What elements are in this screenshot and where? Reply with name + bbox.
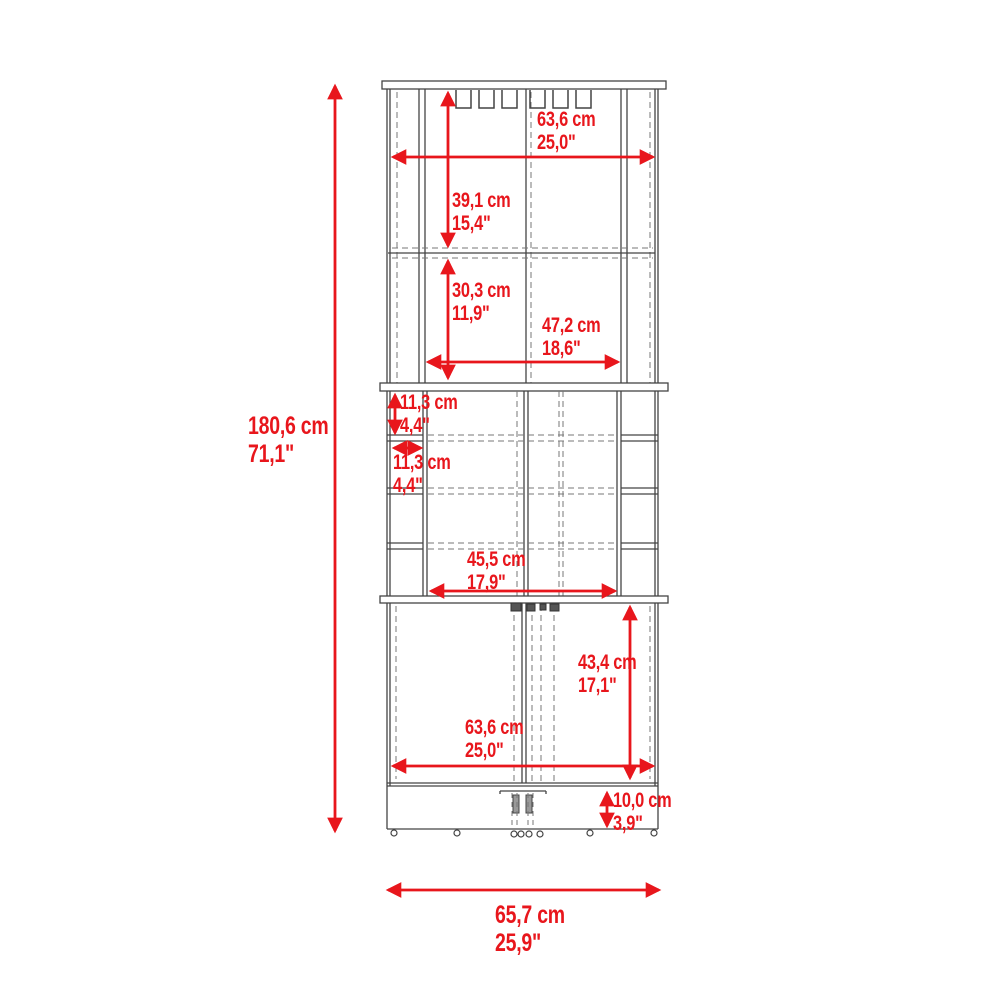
dim-label-overall-height: 180,6 cm 71,1" xyxy=(248,412,329,468)
dim-cm: 30,3 cm xyxy=(452,279,510,302)
dim-in: 18,6" xyxy=(542,337,600,360)
dim-label-hutch-top-height: 39,1 cm 15,4" xyxy=(452,189,510,235)
dim-label-top-width: 63,6 cm 25,0" xyxy=(537,108,595,154)
dim-cm: 39,1 cm xyxy=(452,189,510,212)
dim-label-cabinet-width: 63,6 cm 25,0" xyxy=(465,716,523,762)
top-board xyxy=(382,81,666,89)
dim-label-base-height: 10,0 cm 3,9" xyxy=(613,789,671,835)
dim-in: 25,0" xyxy=(537,131,595,154)
dim-label-middle-inner-width: 45,5 cm 17,9" xyxy=(467,548,525,594)
dim-in: 11,9" xyxy=(452,302,510,325)
stemware-rack-icon xyxy=(456,90,591,108)
dim-label-overall-width: 65,7 cm 25,9" xyxy=(495,901,565,957)
lower-board xyxy=(380,596,668,603)
dim-label-door-height: 43,4 cm 17,1" xyxy=(578,651,636,697)
dim-in: 71,1" xyxy=(248,440,329,468)
dim-cm: 10,0 cm xyxy=(613,789,671,812)
dim-cm: 43,4 cm xyxy=(578,651,636,674)
dim-cm: 11,3 cm xyxy=(400,391,458,414)
dim-label-hutch-inner-width: 47,2 cm 18,6" xyxy=(542,314,600,360)
middle-board xyxy=(380,383,668,391)
upper-hutch xyxy=(387,89,658,383)
hinge-hardware-icon xyxy=(511,603,559,611)
dim-cm: 63,6 cm xyxy=(537,108,595,131)
dim-in: 17,9" xyxy=(467,571,525,594)
dim-in: 17,1" xyxy=(578,674,636,697)
dim-cm: 11,3 cm xyxy=(393,451,451,474)
dim-cm: 63,6 cm xyxy=(465,716,523,739)
diagram-canvas: 180,6 cm 71,1" 63,6 cm 25,0" 39,1 cm 15,… xyxy=(0,0,1000,1000)
dim-in: 15,4" xyxy=(452,212,510,235)
dim-label-cubby-height: 11,3 cm 4,4" xyxy=(400,391,458,437)
dim-in: 3,9" xyxy=(613,812,671,835)
dim-cm: 180,6 cm xyxy=(248,412,329,440)
dim-in: 25,0" xyxy=(465,739,523,762)
dim-cm: 65,7 cm xyxy=(495,901,565,929)
dim-label-hutch-bottom-height: 30,3 cm 11,9" xyxy=(452,279,510,325)
dim-in: 4,4" xyxy=(393,474,451,497)
dim-cm: 47,2 cm xyxy=(542,314,600,337)
dim-cm: 45,5 cm xyxy=(467,548,525,571)
leg-hardware-icon xyxy=(513,795,532,813)
dim-in: 4,4" xyxy=(400,414,458,437)
dim-label-cubby-width: 11,3 cm 4,4" xyxy=(393,451,451,497)
dim-in: 25,9" xyxy=(495,929,565,957)
cabinet-line-drawing xyxy=(0,0,1000,1000)
